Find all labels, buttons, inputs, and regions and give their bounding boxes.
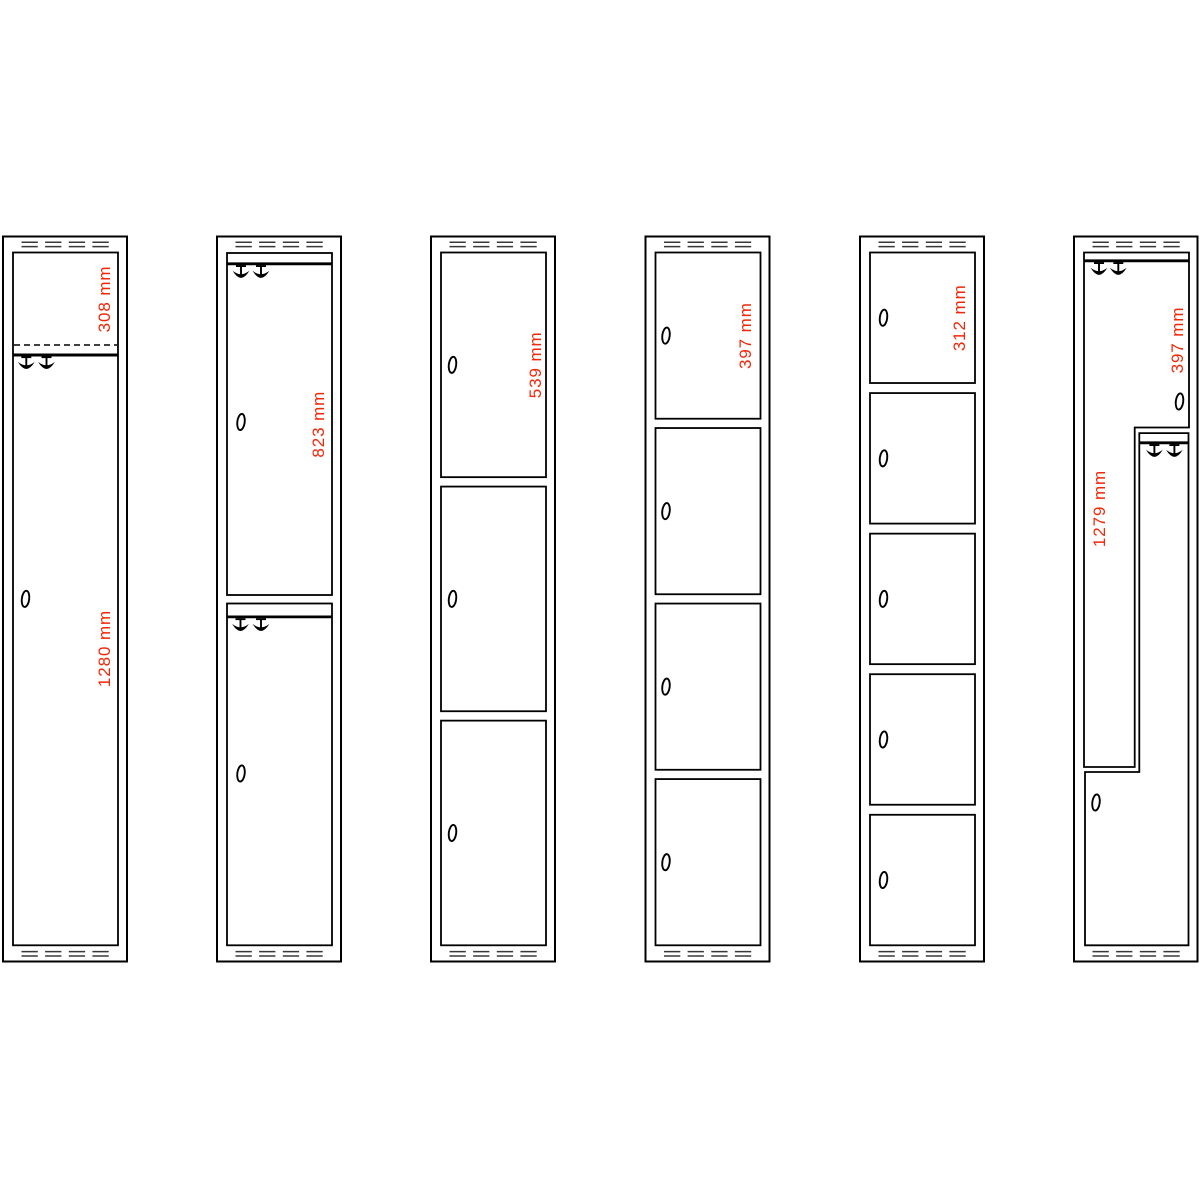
svg-text:397 mm: 397 mm — [736, 302, 755, 369]
svg-text:397 mm: 397 mm — [1168, 307, 1187, 374]
svg-text:1280 mm: 1280 mm — [95, 610, 114, 687]
svg-text:308 mm: 308 mm — [95, 265, 114, 332]
svg-text:823 mm: 823 mm — [309, 391, 328, 458]
svg-text:539 mm: 539 mm — [526, 331, 545, 398]
svg-text:1279 mm: 1279 mm — [1090, 470, 1109, 547]
svg-text:312 mm: 312 mm — [950, 284, 969, 351]
